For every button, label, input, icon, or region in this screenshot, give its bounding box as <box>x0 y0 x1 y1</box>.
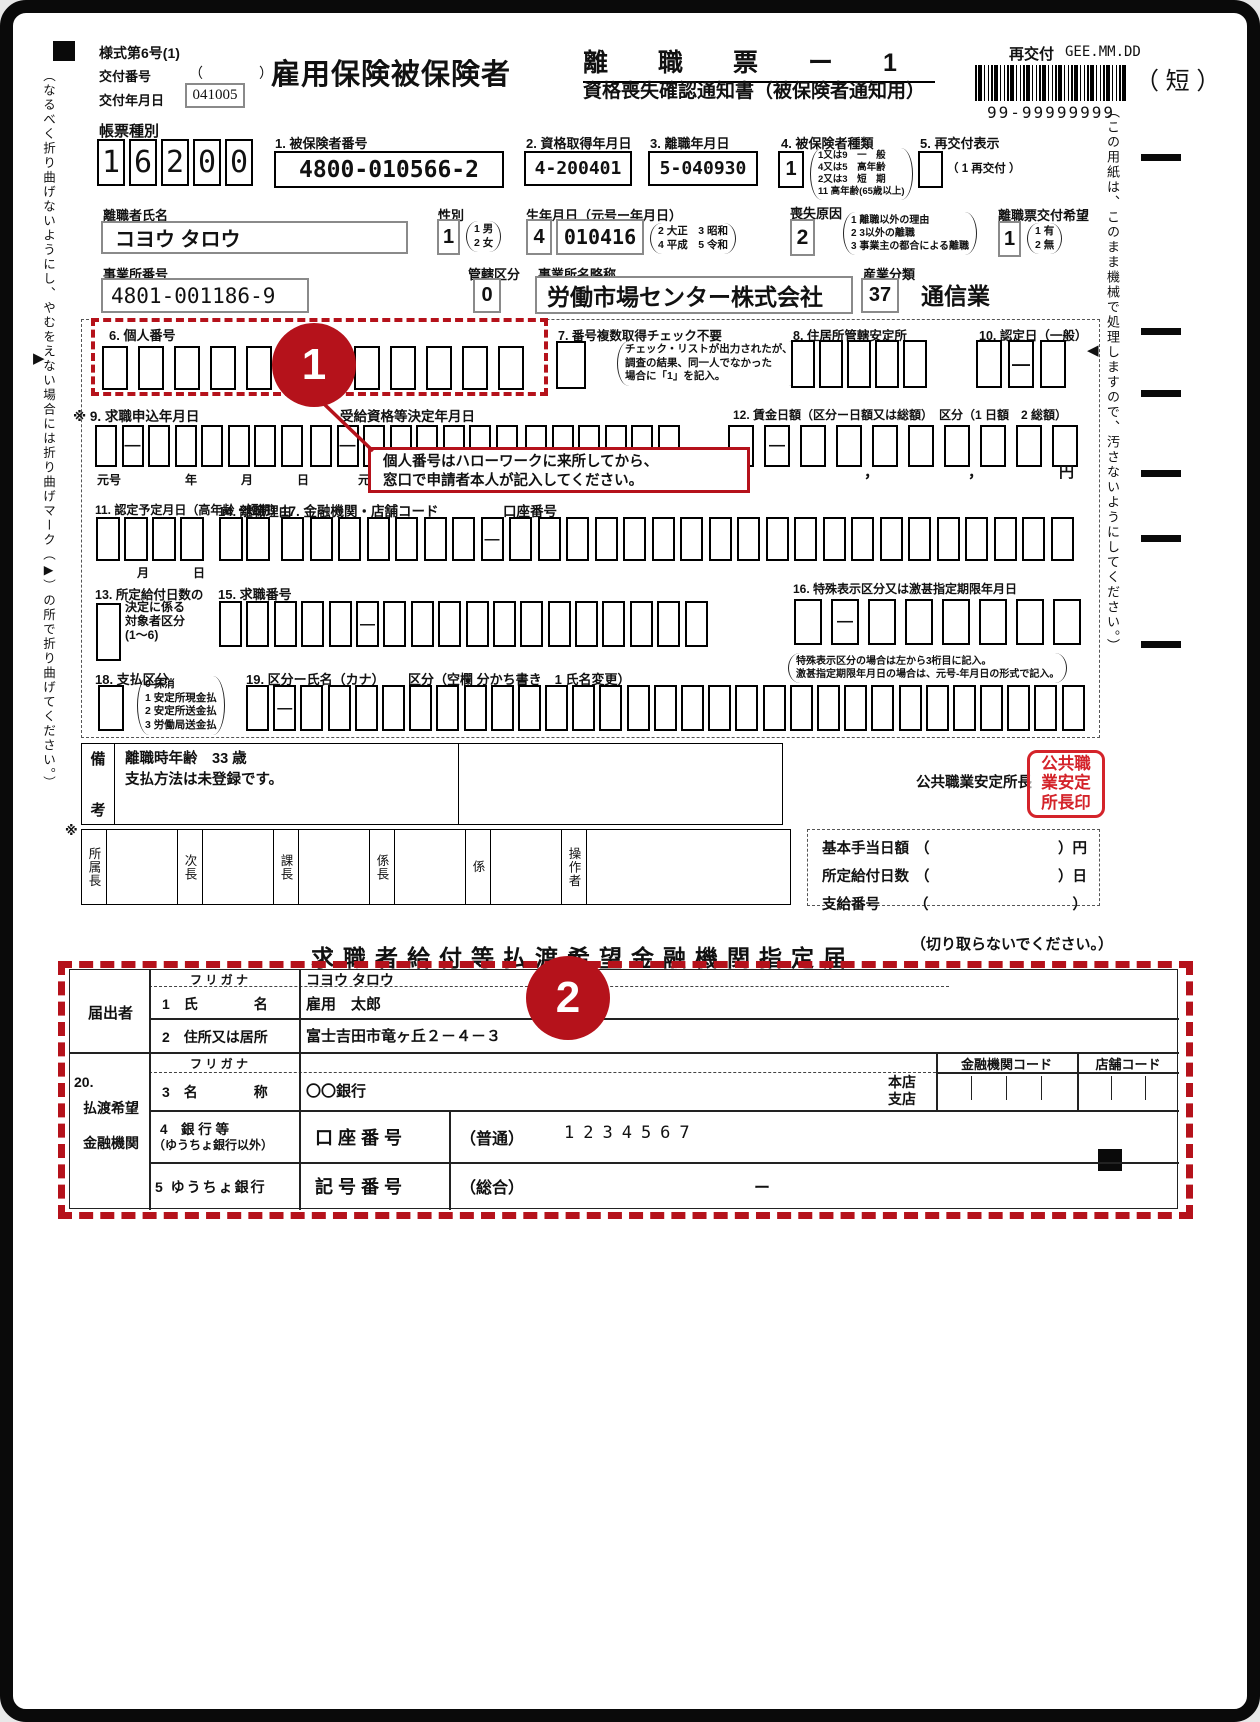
form-box[interactable] <box>556 341 586 389</box>
form-box[interactable] <box>627 685 650 731</box>
form-box[interactable] <box>654 685 677 731</box>
form-box[interactable] <box>979 599 1007 645</box>
form-box[interactable] <box>152 517 176 561</box>
form-box[interactable] <box>102 346 128 390</box>
field10-boxes: — <box>976 340 1072 388</box>
form-box[interactable] <box>96 603 121 661</box>
approval-cell-empty[interactable] <box>587 830 790 904</box>
form-box[interactable] <box>847 340 871 388</box>
form-box[interactable] <box>566 517 589 561</box>
form-box[interactable] <box>246 517 270 561</box>
form-box[interactable]: — <box>764 425 790 467</box>
form-box[interactable] <box>424 517 447 561</box>
approval-cell-label: 次長 <box>178 830 203 904</box>
field7-note: チェック・リストが出力されたが、調査の結果、同一人でなかった場合に「1」を記入。 <box>617 341 801 386</box>
form-box[interactable]: — <box>831 599 859 645</box>
field7-boxes <box>556 341 586 389</box>
benefits-box: 基本手当日額（）円 所定給付日数（）日 支給番号（） <box>807 829 1100 906</box>
form-box[interactable]: — <box>481 517 504 561</box>
field12-comma: ， <box>864 461 879 482</box>
form-box[interactable] <box>1040 340 1066 388</box>
form-box[interactable] <box>980 685 1003 731</box>
field12-label: 12. 賃金日額（区分ー日額又は総額） 区分（1 日額 2 総額） <box>733 406 1067 423</box>
director-stamp: 公共職業安定所長印 <box>1027 750 1105 818</box>
form-box[interactable] <box>880 517 903 561</box>
form-box[interactable] <box>338 517 361 561</box>
timing-mark <box>1141 328 1181 335</box>
field12-unit: 円 <box>1059 461 1074 482</box>
form-box[interactable] <box>328 685 351 731</box>
form-box[interactable] <box>246 601 269 647</box>
form-box[interactable] <box>466 601 489 647</box>
form-box[interactable] <box>219 601 242 647</box>
field11-sublabel-day: 日 <box>193 564 205 581</box>
form-box[interactable] <box>382 685 405 731</box>
annotation-circle-2: 2 <box>526 956 610 1040</box>
approval-asterisk: ※ <box>65 823 78 839</box>
form-box[interactable] <box>602 601 625 647</box>
field13-boxes <box>96 603 121 661</box>
personal-number-note: 個人番号はハローワークに来所してから、窓口で申請者本人が記入してください。 <box>368 447 750 493</box>
form-box[interactable] <box>411 601 434 647</box>
office-name-value[interactable]: 労働市場センター株式会社 <box>535 276 853 314</box>
field9-boxes: — <box>95 425 307 467</box>
form-box[interactable] <box>994 517 1017 561</box>
form-box[interactable] <box>274 601 297 647</box>
field5-value[interactable] <box>918 151 943 188</box>
field19-boxes: — <box>246 685 1089 731</box>
form-box[interactable] <box>246 346 272 390</box>
reissue-date: GEE.MM.DD <box>1065 44 1141 60</box>
form-box[interactable] <box>1007 685 1030 731</box>
form-box[interactable] <box>491 685 514 731</box>
form-box[interactable] <box>300 685 323 731</box>
field9-label: ※ 9. 求職申込年月日 <box>73 405 199 425</box>
form-box[interactable] <box>254 425 276 467</box>
form-box[interactable] <box>518 685 541 731</box>
form-box[interactable] <box>96 517 120 561</box>
remarks-box: 備考 離職時年齢 33 歳支払方法は未登録です。 <box>81 743 783 825</box>
field1-label: 1. 被保険者番号 <box>275 133 367 152</box>
form-box[interactable] <box>908 517 931 561</box>
form-box[interactable] <box>301 601 324 647</box>
field3-value[interactable]: 5-040930 <box>648 151 758 186</box>
field8-boxes <box>791 340 931 388</box>
form-box[interactable] <box>180 517 204 561</box>
field9-sublabel-month: 月 <box>241 471 253 488</box>
field16-boxes: — <box>794 599 1090 645</box>
form-box[interactable] <box>905 599 933 645</box>
field9-sublabel-year: 年 <box>185 471 197 488</box>
form-box[interactable] <box>281 425 303 467</box>
approval-cell-label: 課長 <box>274 830 299 904</box>
form-box[interactable] <box>395 517 418 561</box>
form-box[interactable] <box>708 685 731 731</box>
form-box[interactable] <box>201 425 223 467</box>
timing-mark <box>1141 390 1181 397</box>
page-title: 雇用保険被保険者 <box>271 51 511 93</box>
field18-note: 0 抹消1 安定所現金払2 安定所送金払3 労働局送金払 <box>137 676 225 735</box>
field16-label: 16. 特殊表示区分又は激甚指定期限年月日 <box>793 580 1017 597</box>
form-box[interactable] <box>310 517 333 561</box>
form-box[interactable] <box>1051 517 1074 561</box>
form-box[interactable] <box>462 346 488 390</box>
form-box[interactable] <box>735 685 758 731</box>
form-box[interactable] <box>329 601 352 647</box>
form-box[interactable] <box>836 425 862 467</box>
bank-section-border <box>58 961 1193 1219</box>
remarks-content: 離職時年齢 33 歳支払方法は未登録です。 <box>115 744 459 824</box>
field13-lines: 決定に係る対象者区分(1～6) <box>125 600 185 642</box>
form-box[interactable] <box>908 425 934 467</box>
form-box[interactable] <box>464 685 487 731</box>
approval-cell-empty[interactable] <box>203 830 274 904</box>
industry-code[interactable]: 37 <box>861 278 899 313</box>
form-box[interactable] <box>138 346 164 390</box>
form-box[interactable] <box>685 601 708 647</box>
form-box[interactable] <box>823 517 846 561</box>
field9-sublabel-era: 元号 <box>97 471 121 488</box>
form-box[interactable] <box>1022 517 1045 561</box>
field18-boxes <box>98 685 124 731</box>
form-box[interactable] <box>354 346 380 390</box>
form-box[interactable] <box>819 340 843 388</box>
form-box[interactable]: 2 <box>161 139 189 186</box>
field3-label: 3. 離職年月日 <box>650 133 729 152</box>
form-box[interactable] <box>281 517 304 561</box>
form-box[interactable] <box>851 517 874 561</box>
field5-label: 5. 再交付表示 <box>920 133 999 152</box>
form-box[interactable]: 0 <box>193 139 221 186</box>
field11-sublabel-month: 月 <box>137 564 149 581</box>
loss-note: 1 離職以外の理由2 3以外の離職3 事業主の都合による離職 <box>843 212 977 255</box>
form-box[interactable] <box>390 346 416 390</box>
timing-mark <box>1141 154 1181 161</box>
form-box[interactable] <box>899 685 922 731</box>
form-box[interactable] <box>246 685 269 731</box>
form-type-label: 帳票種別 <box>99 120 159 141</box>
form-box[interactable] <box>652 517 675 561</box>
reissue-label: 再交付 <box>1009 43 1054 64</box>
issue-date-label: 交付年月日 <box>99 90 164 109</box>
form-box[interactable]: — <box>273 685 296 731</box>
sex-note: 1 男2 女 <box>466 221 501 252</box>
issue-number-value: （ ） <box>189 63 273 83</box>
approval-table: 所属長 次長 課長 係長 係 操作者 <box>81 829 791 905</box>
form-box[interactable] <box>680 517 703 561</box>
field5-note: （ 1 再交付 ） <box>947 160 1020 176</box>
form-box[interactable] <box>976 340 1002 388</box>
approval-cell-empty[interactable] <box>491 830 562 904</box>
form-box[interactable] <box>763 685 786 731</box>
field4-note: 1又は9 一 般4又は5 高年齢2又は3 短 期11 高年齢(65歳以上) <box>810 148 913 200</box>
form-box[interactable] <box>520 601 543 647</box>
form-box[interactable] <box>794 517 817 561</box>
field1-value[interactable]: 4800-010566-2 <box>274 151 504 188</box>
issue-date-value[interactable]: 041005 <box>185 83 245 108</box>
form-box[interactable] <box>944 425 970 467</box>
approval-cell-label: 係 <box>466 830 491 904</box>
form-box[interactable] <box>926 685 949 731</box>
form-box[interactable] <box>681 685 704 731</box>
form-box[interactable] <box>937 517 960 561</box>
form-box[interactable] <box>572 685 595 731</box>
form-box[interactable] <box>538 517 561 561</box>
field17-boxes: — <box>281 517 1079 561</box>
form-box[interactable] <box>174 346 200 390</box>
field9b-label: 受給資格等決定年月日 <box>340 405 475 425</box>
sex-value[interactable]: 1 <box>437 219 460 255</box>
industry-name: 通信業 <box>921 277 990 311</box>
field4-value[interactable]: 1 <box>778 151 804 188</box>
page-subtitle: 資格喪失確認通知書（被保険者通知用） <box>583 76 925 103</box>
short-type-label: （ 短 ） <box>1135 61 1220 96</box>
form-box[interactable] <box>310 425 332 467</box>
field12-boxes: — <box>728 425 1088 467</box>
field16-note: 特殊表示区分の場合は左から3桁目に記入。激甚指定期限年月日の場合は、元号-年月日… <box>788 653 1067 683</box>
birth-note: 2 大正 3 昭和4 平成 5 令和 <box>650 223 736 254</box>
form-box[interactable] <box>709 517 732 561</box>
approval-cell-label: 操作者 <box>562 830 587 904</box>
form-box[interactable] <box>623 517 646 561</box>
birth-era[interactable]: 4 <box>526 219 552 255</box>
form-box[interactable] <box>438 601 461 647</box>
form-box[interactable] <box>630 601 653 647</box>
form-box[interactable]: — <box>356 601 379 647</box>
form-box[interactable] <box>657 601 680 647</box>
approval-cell-label: 所属長 <box>82 830 107 904</box>
right-margin-note: （この用紙は、このまま機械で処理しますので、汚さないようにしてください。） <box>1103 105 1122 680</box>
form-type-boxes: 16200 <box>97 139 257 186</box>
form-box[interactable] <box>875 340 899 388</box>
form-box[interactable] <box>844 685 867 731</box>
form-box[interactable] <box>575 601 598 647</box>
form-box[interactable] <box>452 517 475 561</box>
timing-mark <box>1141 641 1181 648</box>
form-box[interactable] <box>599 685 622 731</box>
form-box[interactable] <box>868 599 896 645</box>
form-box[interactable] <box>942 599 970 645</box>
form-box[interactable] <box>1016 425 1042 467</box>
jurisdiction-value[interactable]: 0 <box>473 278 501 313</box>
form-box[interactable] <box>1034 685 1057 731</box>
form-box[interactable] <box>545 685 568 731</box>
birth-value[interactable]: 010416 <box>556 219 644 255</box>
approval-cell-empty[interactable] <box>299 830 370 904</box>
form-box[interactable] <box>1062 685 1085 731</box>
form-box[interactable] <box>1016 599 1044 645</box>
form-box[interactable] <box>766 517 789 561</box>
form-box[interactable] <box>124 517 148 561</box>
rishokuhyo-form-page: （なるべく折り曲げないようにし、やむをえない場合には折り曲げマーク（▶）の所で折… <box>0 0 1260 1722</box>
field14-boxes <box>219 517 273 561</box>
form-box[interactable] <box>367 517 390 561</box>
form-box[interactable] <box>800 425 826 467</box>
form-box[interactable] <box>794 599 822 645</box>
approval-cell-label: 係長 <box>370 830 395 904</box>
loss-value[interactable]: 2 <box>790 219 815 256</box>
form-box[interactable] <box>498 346 524 390</box>
form-box[interactable] <box>509 517 532 561</box>
form-box[interactable]: — <box>337 425 359 467</box>
form-box[interactable]: 0 <box>225 139 253 186</box>
wish-note: 1 有2 無 <box>1027 223 1062 254</box>
annotation-circle-1: 1 <box>272 323 356 407</box>
field9-sublabel-day: 日 <box>297 471 309 488</box>
form-box[interactable]: — <box>1008 340 1034 388</box>
form-box[interactable] <box>210 346 236 390</box>
approval-cell-empty[interactable] <box>107 830 178 904</box>
field15-boxes: — <box>219 601 712 647</box>
form-box[interactable] <box>175 425 197 467</box>
remarks-label: 備考 <box>82 744 115 824</box>
form-box[interactable] <box>1053 599 1081 645</box>
form-box[interactable] <box>871 685 894 731</box>
form-box[interactable]: — <box>122 425 144 467</box>
issue-number-label: 交付番号 <box>99 66 151 85</box>
form-box[interactable] <box>95 425 117 467</box>
form-box[interactable] <box>436 685 459 731</box>
form-box[interactable] <box>903 340 927 388</box>
name-value[interactable]: コヨウ タロウ <box>101 221 408 254</box>
form-box[interactable] <box>228 425 250 467</box>
form-box[interactable] <box>953 685 976 731</box>
barcode <box>975 65 1127 101</box>
form-code: 様式第6号(1) <box>99 43 180 63</box>
form-box[interactable] <box>817 685 840 731</box>
form-box[interactable] <box>791 340 815 388</box>
remarks-empty <box>459 744 782 824</box>
field11-boxes <box>96 517 208 561</box>
form-box[interactable] <box>595 517 618 561</box>
form-box[interactable] <box>493 601 516 647</box>
form-box[interactable] <box>98 685 124 731</box>
director-label: 公共職業安定所長 <box>916 771 1032 792</box>
timing-mark <box>1141 470 1181 477</box>
cut-note: （切り取らないでください。） <box>911 933 1113 954</box>
form-box[interactable] <box>980 425 1006 467</box>
approval-cell-empty[interactable] <box>395 830 466 904</box>
form-box[interactable] <box>965 517 988 561</box>
form-box[interactable] <box>355 685 378 731</box>
field2-label: 2. 資格取得年月日 <box>526 133 631 152</box>
timing-mark <box>1141 535 1181 542</box>
form-box[interactable] <box>790 685 813 731</box>
form-box[interactable] <box>148 425 170 467</box>
wish-value[interactable]: 1 <box>998 221 1021 257</box>
form-box[interactable] <box>426 346 452 390</box>
barcode-number: 99-99999999 <box>975 103 1127 122</box>
form-box[interactable]: 1 <box>97 139 125 186</box>
registration-mark-topleft <box>53 41 75 61</box>
form-box[interactable] <box>383 601 406 647</box>
form-box[interactable]: 6 <box>129 139 157 186</box>
field12-comma: ， <box>968 461 983 482</box>
field2-value[interactable]: 4-200401 <box>524 151 632 186</box>
form-box[interactable] <box>219 517 243 561</box>
form-box[interactable] <box>409 685 432 731</box>
fold-mark-left-icon: ▶ <box>33 349 45 367</box>
office-number-value[interactable]: 4801-001186-9 <box>101 278 309 313</box>
form-box[interactable] <box>548 601 571 647</box>
form-box[interactable] <box>737 517 760 561</box>
